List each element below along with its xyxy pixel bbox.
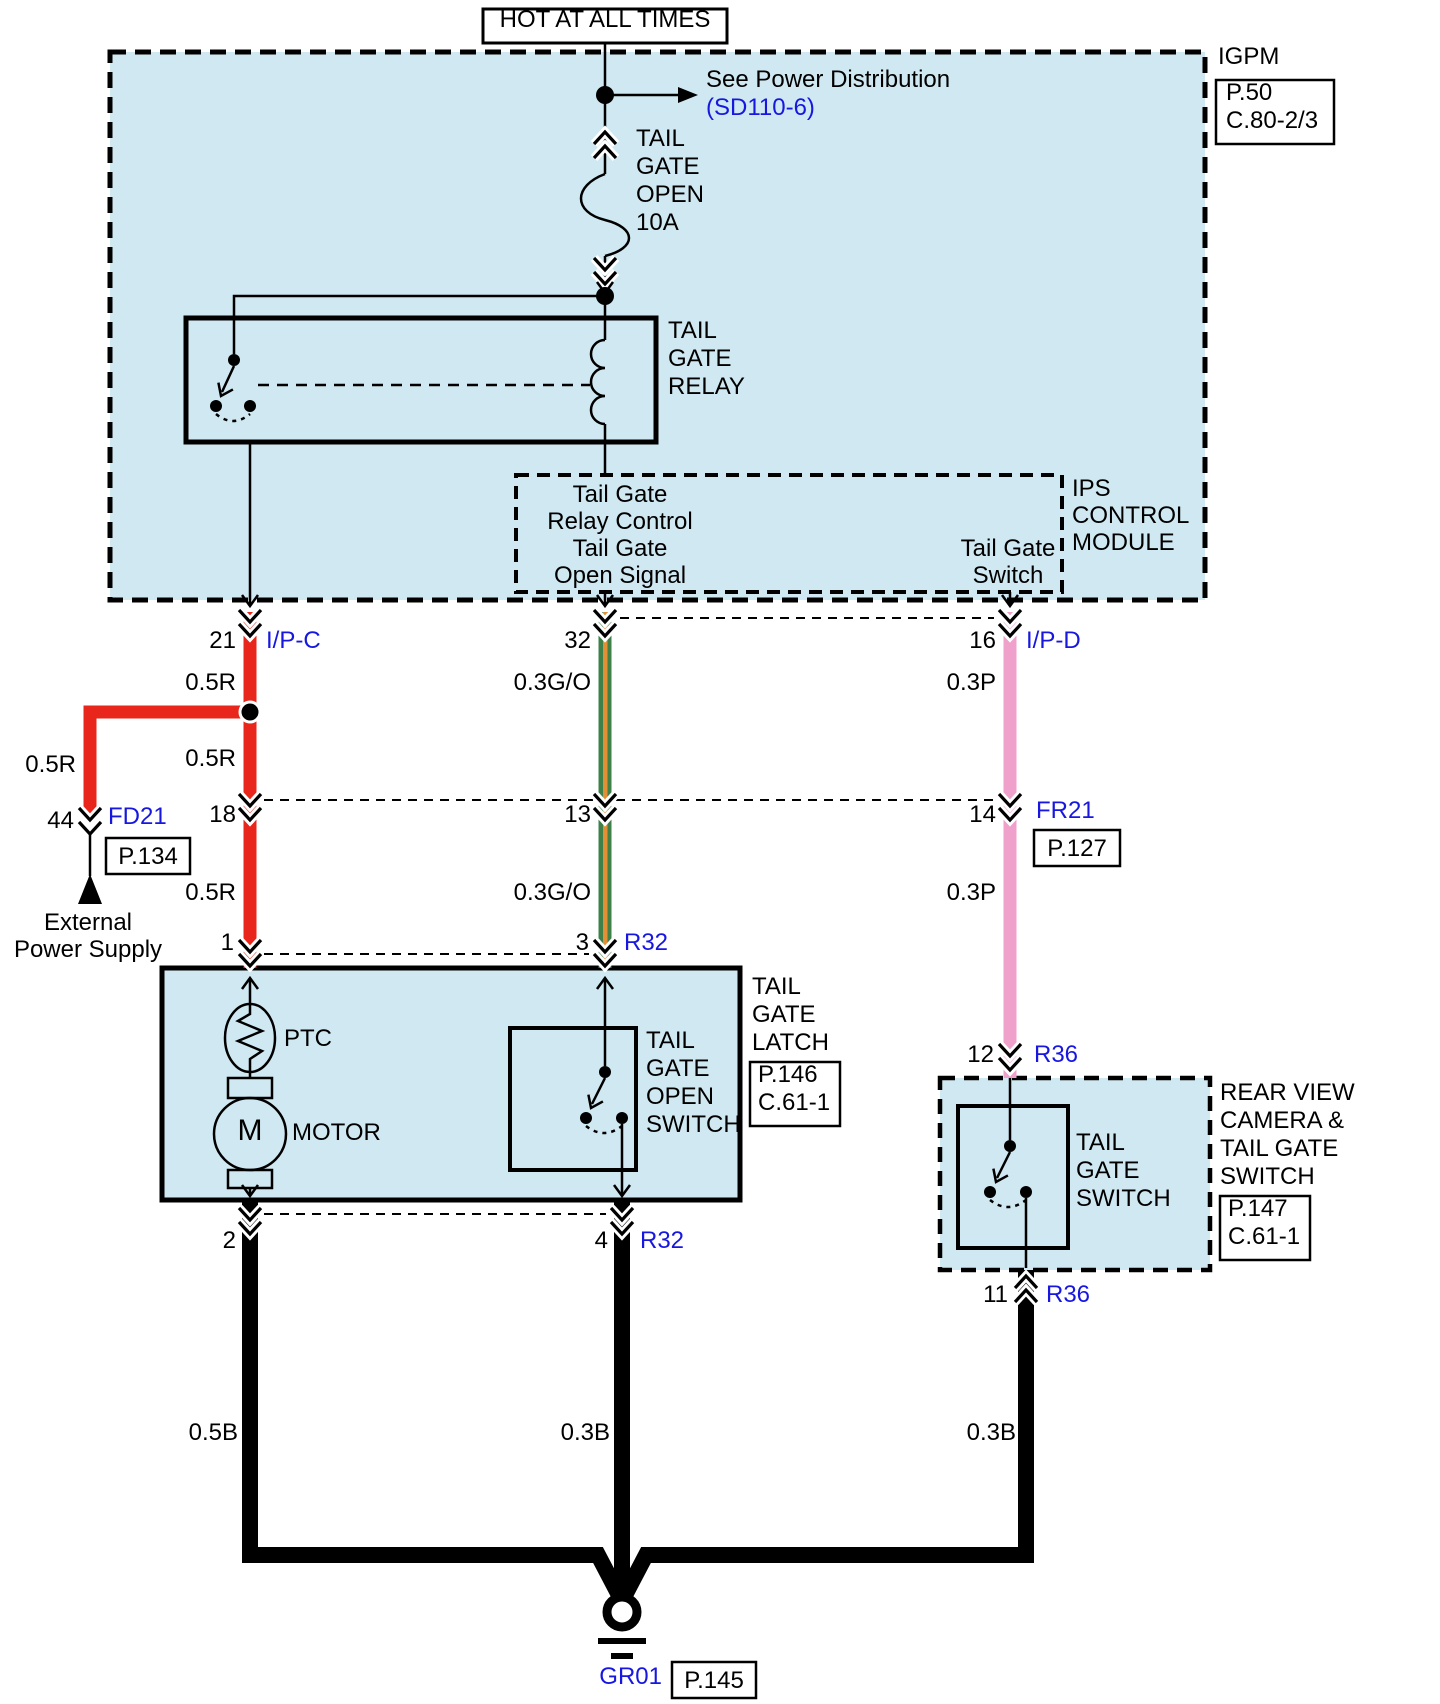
wiring-diagram: HOT AT ALL TIMES See Power Distribution … [0, 0, 1440, 1704]
wire-label-05r-branch: 0.5R [25, 751, 76, 778]
pin-13-label: 13 [564, 801, 591, 828]
pin-1-label: 1 [221, 929, 234, 956]
wire-label-05r-c: 0.5R [185, 879, 236, 906]
rear-switch-label-2: GATE [1076, 1157, 1140, 1184]
open-switch-label-1: TAIL [646, 1027, 695, 1054]
motor-label: MOTOR [292, 1119, 381, 1146]
pin-32-label: 32 [564, 627, 591, 654]
tail-gate-relay-box [186, 318, 656, 442]
pin-3-label: 3 [576, 929, 589, 956]
rear-title-2: CAMERA & [1220, 1107, 1344, 1134]
latch-page: P.146 [758, 1061, 818, 1088]
igpm-page: P.50 [1226, 79, 1272, 106]
connector-r32-bottom-label: R32 [640, 1227, 684, 1254]
rear-title-1: REAR VIEW [1220, 1079, 1355, 1106]
fd21-page: P.134 [118, 843, 178, 870]
latch-title-2: GATE [752, 1001, 816, 1028]
ips-switch-line1: Tail Gate [961, 535, 1056, 562]
fuse-label-3: OPEN [636, 181, 704, 208]
pin-21-label: 21 [209, 627, 236, 654]
hot-at-all-times-label: HOT AT ALL TIMES [500, 6, 711, 33]
fr21-page: P.127 [1047, 835, 1107, 862]
pin-2-label: 2 [223, 1227, 236, 1254]
external-supply-line2: Power Supply [14, 936, 162, 963]
rear-connector: C.61-1 [1228, 1223, 1300, 1250]
connector-ipd-label: I/P-D [1026, 627, 1081, 654]
wire-label-03b-right: 0.3B [967, 1419, 1016, 1446]
connector-r36-top-label: R36 [1034, 1041, 1078, 1068]
pin-4-label: 4 [595, 1227, 608, 1254]
connector-fr21-label: FR21 [1036, 797, 1095, 824]
wire-label-05r-a: 0.5R [185, 669, 236, 696]
ips-title-3: MODULE [1072, 529, 1175, 556]
relay-label-2: GATE [668, 345, 732, 372]
ptc-label: PTC [284, 1025, 332, 1052]
ips-open-signal-line1: Tail Gate [573, 535, 668, 562]
rear-switch-label-1: TAIL [1076, 1129, 1125, 1156]
ips-relay-control-line1: Tail Gate [573, 481, 668, 508]
motor-letter: M [238, 1114, 263, 1147]
wire-label-03p-c: 0.3P [947, 879, 996, 906]
pink-wire [1004, 612, 1017, 1078]
pin-44-label: 44 [47, 807, 74, 834]
fuse-label-4: 10A [636, 209, 679, 236]
igpm-title: IGPM [1218, 43, 1279, 70]
connector-ipc-label: I/P-C [266, 627, 321, 654]
green-orange-wire [599, 612, 612, 968]
junction-dot-branch [240, 702, 260, 722]
ips-open-signal-line2: Open Signal [554, 562, 686, 589]
ground-wires [250, 1202, 1026, 1598]
connector-r36-bottom-label: R36 [1046, 1281, 1090, 1308]
external-supply-line1: External [44, 909, 132, 936]
ips-title-1: IPS [1072, 475, 1111, 502]
external-power-supply-icon [78, 834, 102, 904]
fuse-label-1: TAIL [636, 125, 685, 152]
connector-gr01-label: GR01 [599, 1663, 662, 1690]
open-switch-label-3: OPEN [646, 1083, 714, 1110]
open-switch-label-2: GATE [646, 1055, 710, 1082]
relay-label-3: RELAY [668, 373, 745, 400]
wire-label-03go-a: 0.3G/O [514, 669, 591, 696]
pin-14-label: 14 [969, 801, 996, 828]
see-power-distribution-label: See Power Distribution [706, 66, 950, 93]
see-power-distribution-ref: (SD110-6) [706, 94, 815, 121]
pin-18-label: 18 [209, 801, 236, 828]
ips-title-2: CONTROL [1072, 502, 1189, 529]
relay-label-1: TAIL [668, 317, 717, 344]
ips-relay-control-line2: Relay Control [547, 508, 692, 535]
connector-fd21-label: FD21 [108, 803, 167, 830]
pin-16-label: 16 [969, 627, 996, 654]
ips-switch-line2: Switch [973, 562, 1044, 589]
ground-icon [598, 1597, 646, 1656]
wire-label-03b-mid: 0.3B [561, 1419, 610, 1446]
latch-connector: C.61-1 [758, 1089, 830, 1116]
pin-12-label: 12 [967, 1041, 994, 1068]
gr01-page: P.145 [684, 1667, 744, 1694]
open-switch-label-4: SWITCH [646, 1111, 741, 1138]
rear-title-3: TAIL GATE [1220, 1135, 1338, 1162]
wire-label-05b: 0.5B [189, 1419, 238, 1446]
rear-switch-label-3: SWITCH [1076, 1185, 1171, 1212]
rear-page: P.147 [1228, 1195, 1288, 1222]
pin-11-label: 11 [983, 1281, 1008, 1308]
rear-title-4: SWITCH [1220, 1163, 1315, 1190]
wire-label-05r-b: 0.5R [185, 745, 236, 772]
igpm-connector: C.80-2/3 [1226, 107, 1318, 134]
latch-title-1: TAIL [752, 973, 801, 1000]
wire-label-03p-a: 0.3P [947, 669, 996, 696]
wire-label-03go-c: 0.3G/O [514, 879, 591, 906]
fuse-label-2: GATE [636, 153, 700, 180]
connector-r32-top-label: R32 [624, 929, 668, 956]
latch-title-3: LATCH [752, 1029, 829, 1056]
